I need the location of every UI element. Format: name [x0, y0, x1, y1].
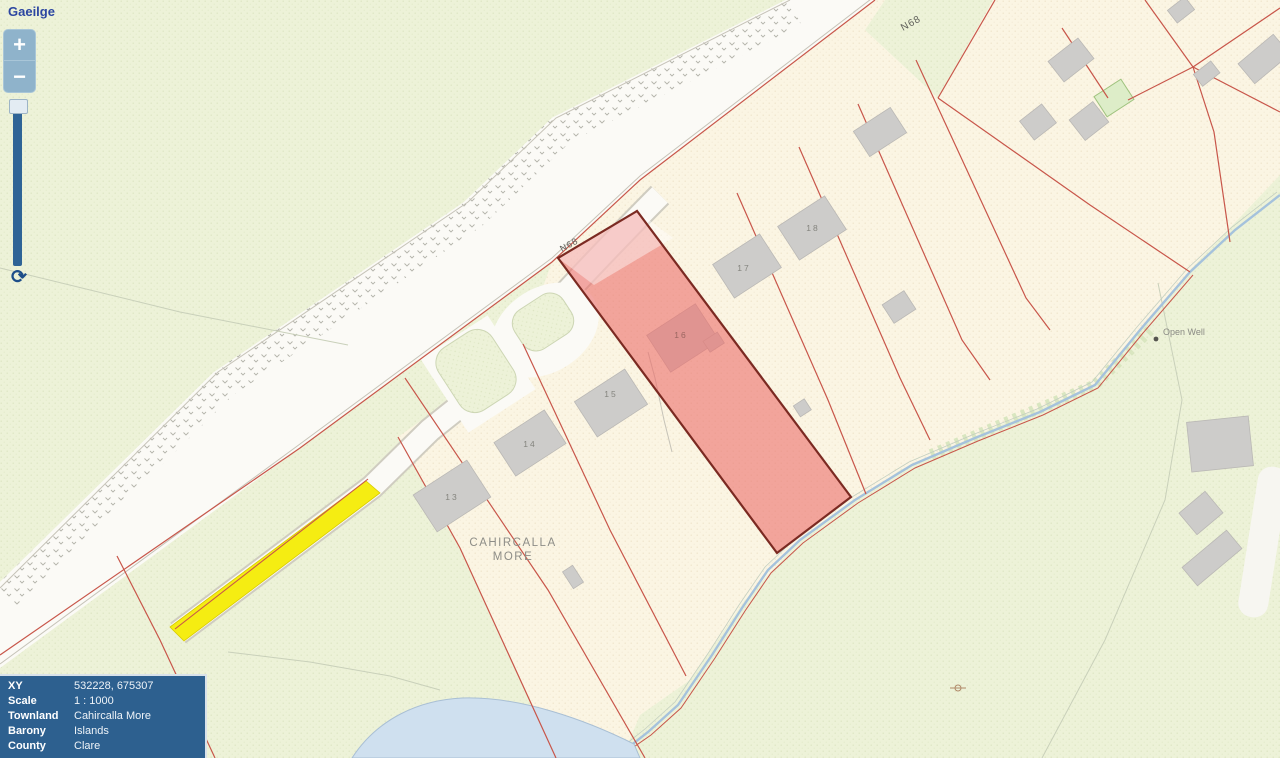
zoom-slider-track[interactable]	[13, 112, 22, 266]
map-canvas[interactable]: N68 N68 13 14 15 16 17 18 CAHIRCALLA MOR…	[0, 0, 1280, 758]
info-value: Islands	[74, 724, 109, 739]
townland-label-line1: CAHIRCALLA	[469, 537, 556, 549]
house-number-13: 13	[445, 492, 458, 502]
info-label: Scale	[0, 694, 74, 709]
info-value: Clare	[74, 739, 100, 754]
house-number-14: 14	[523, 439, 536, 449]
zoom-out-button[interactable]: −	[3, 61, 36, 93]
building-right-1	[1187, 416, 1254, 472]
info-label: Townland	[0, 709, 74, 724]
house-number-18: 18	[806, 223, 819, 233]
info-label: Barony	[0, 724, 74, 739]
info-row-scale: Scale 1 : 1000	[0, 694, 205, 709]
open-well-label: Open Well	[1163, 327, 1205, 337]
zoom-slider-handle[interactable]	[9, 99, 28, 114]
info-row-townland: Townland Cahircalla More	[0, 709, 205, 724]
house-number-16: 16	[674, 330, 687, 340]
info-value: 1 : 1000	[74, 694, 114, 709]
info-value: 532228, 675307	[74, 679, 154, 694]
map-viewer: N68 N68 13 14 15 16 17 18 CAHIRCALLA MOR…	[0, 0, 1280, 758]
refresh-icon[interactable]: ⟳	[7, 266, 31, 290]
map-info-panel: XY 532228, 675307 Scale 1 : 1000 Townlan…	[0, 674, 207, 758]
info-row-county: County Clare	[0, 739, 205, 754]
language-link[interactable]: Gaeilge	[8, 4, 55, 19]
info-value: Cahircalla More	[74, 709, 151, 724]
townland-label-line2: MORE	[493, 551, 534, 563]
house-number-15: 15	[604, 389, 617, 399]
info-row-xy: XY 532228, 675307	[0, 679, 205, 694]
zoom-controls: + −	[3, 29, 36, 93]
open-well-marker	[1154, 337, 1159, 342]
info-label: County	[0, 739, 74, 754]
info-row-barony: Barony Islands	[0, 724, 205, 739]
house-number-17: 17	[737, 263, 750, 273]
info-label: XY	[0, 679, 74, 694]
zoom-in-button[interactable]: +	[3, 29, 36, 61]
